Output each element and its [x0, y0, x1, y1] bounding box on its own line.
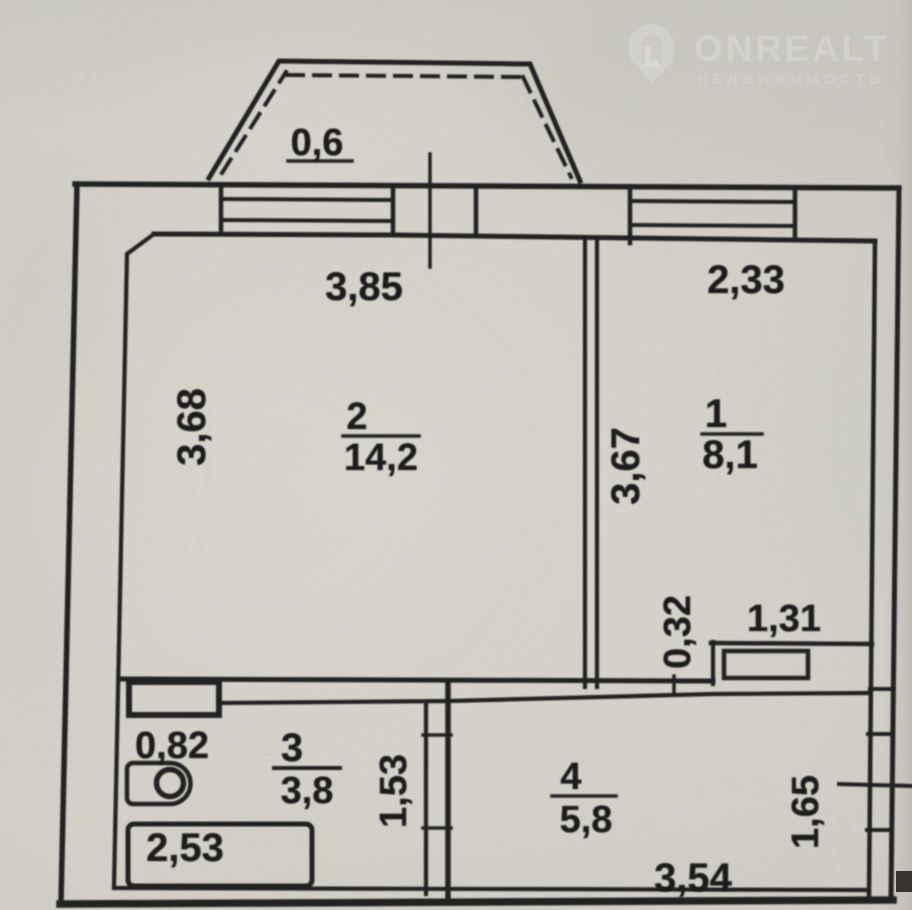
svg-text:2,53: 2,53	[146, 826, 224, 870]
svg-text:1,65: 1,65	[785, 775, 827, 849]
svg-text:0,6: 0,6	[291, 122, 344, 164]
svg-text:4: 4	[560, 756, 581, 798]
svg-text:3: 3	[281, 726, 303, 770]
svg-text:0,32: 0,32	[657, 595, 699, 669]
svg-text:0,82: 0,82	[135, 725, 209, 767]
svg-text:3,8: 3,8	[281, 770, 334, 812]
svg-text:ONREALT: ONREALT	[694, 28, 890, 69]
svg-text:1,31: 1,31	[747, 598, 821, 640]
svg-text:1: 1	[705, 392, 727, 436]
svg-text:3,68: 3,68	[170, 388, 214, 466]
svg-text:3,54: 3,54	[654, 856, 733, 900]
svg-text:2: 2	[346, 396, 367, 438]
svg-text:НЕДВИЖИМОСТЬ: НЕДВИЖИМОСТЬ	[697, 71, 884, 88]
svg-text:14,2: 14,2	[344, 437, 418, 479]
svg-text:3,67: 3,67	[604, 427, 648, 505]
svg-text:5,8: 5,8	[560, 799, 613, 841]
svg-text:2,33: 2,33	[707, 258, 785, 302]
svg-text:8,1: 8,1	[702, 433, 758, 477]
svg-text:1,53: 1,53	[373, 754, 415, 828]
svg-text:3,85: 3,85	[325, 265, 403, 309]
